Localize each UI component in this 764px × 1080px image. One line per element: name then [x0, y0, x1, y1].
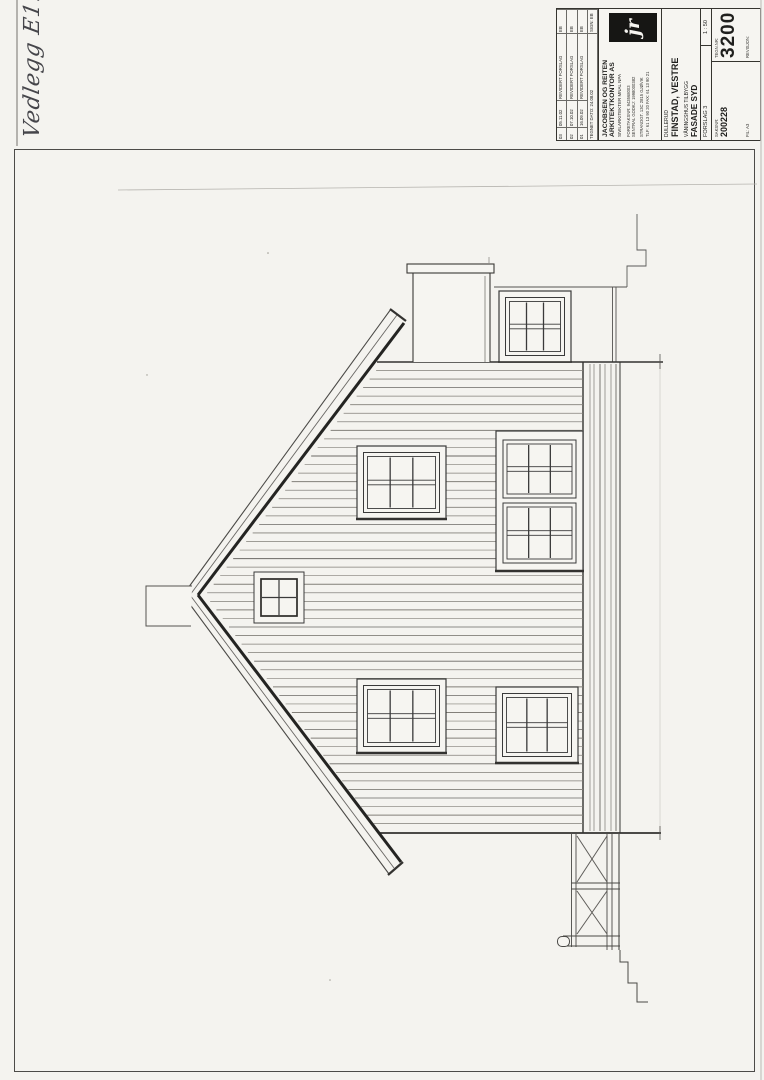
ridge-box — [146, 586, 192, 626]
elevation-drawing — [0, 0, 764, 1080]
railing-post-cap — [558, 937, 570, 947]
verge-end-cap-top — [390, 309, 406, 321]
scanned-drawing-page: Vedlegg E1. 03 05.11.02 REVIDERT FORSLAG… — [0, 0, 764, 1080]
scan-artifacts — [17, 0, 761, 1080]
stairs-profile — [620, 950, 648, 1002]
verge-end-cap-bottom — [388, 862, 403, 875]
chimney — [407, 257, 494, 362]
railing — [558, 834, 621, 950]
foundation-band — [583, 362, 620, 833]
